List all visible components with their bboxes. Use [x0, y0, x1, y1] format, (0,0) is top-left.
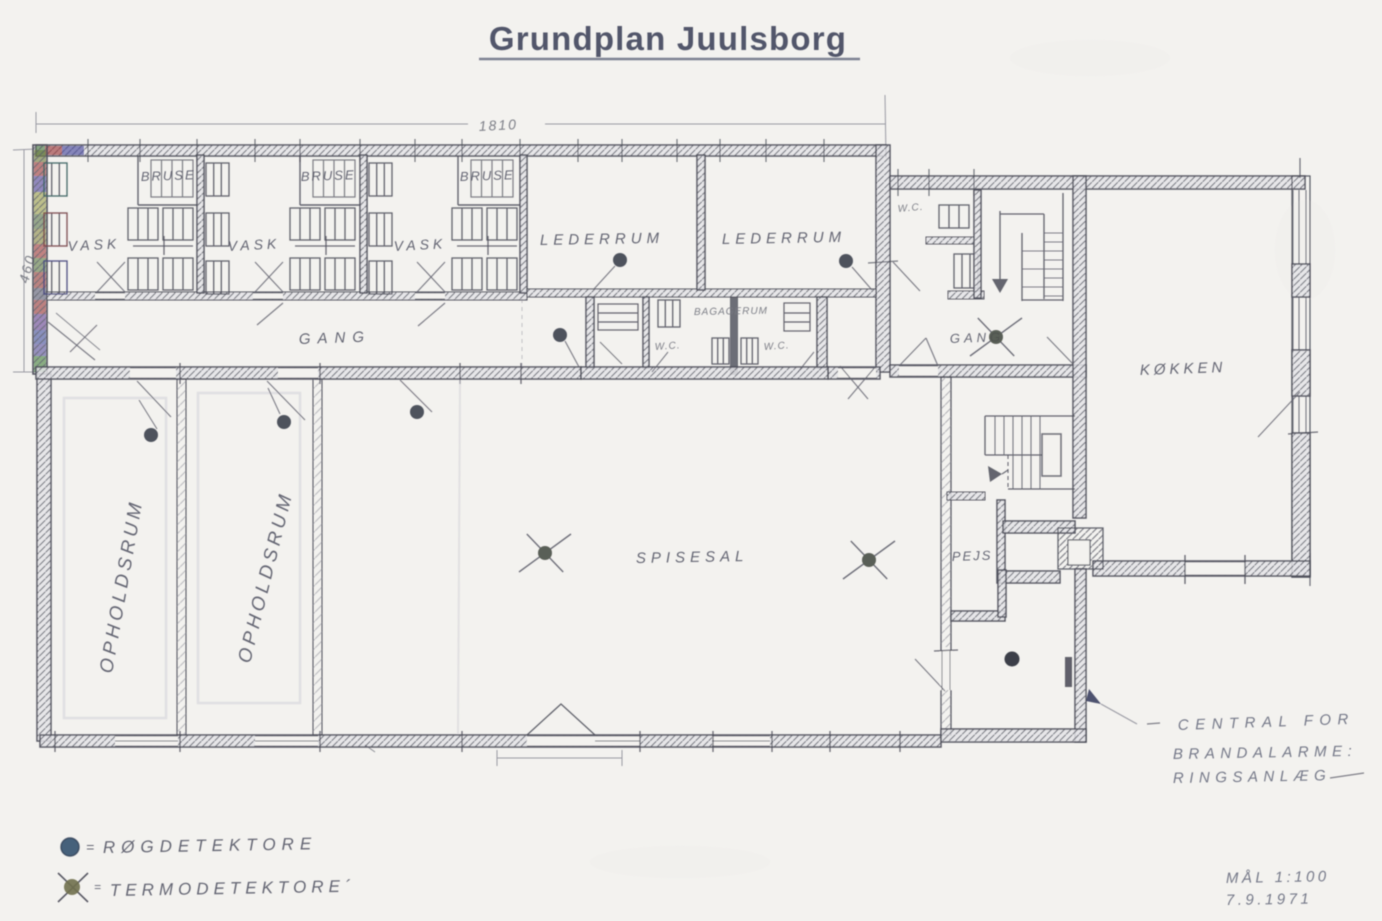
svg-text:BRUSE: BRUSE [141, 167, 196, 184]
svg-text:W.C.: W.C. [654, 340, 681, 353]
svg-text:VASK: VASK [67, 235, 120, 254]
svg-text:LEDERRUM: LEDERRUM [540, 230, 664, 249]
svg-text:=: = [94, 880, 101, 894]
svg-text:GANG: GANG [299, 328, 372, 348]
svg-text:BAGAGERUM: BAGAGERUM [694, 306, 768, 318]
svg-text:MÅL 1:100: MÅL 1:100 [1226, 868, 1330, 887]
svg-text:1810: 1810 [478, 116, 518, 134]
svg-text:VASK: VASK [393, 235, 446, 254]
svg-text:VASK: VASK [227, 235, 280, 254]
svg-text:KØKKEN: KØKKEN [1140, 359, 1227, 379]
svg-text:Grundplan Juulsborg: Grundplan Juulsborg [489, 20, 847, 57]
svg-text:RINGSANLÆG: RINGSANLÆG [1173, 767, 1332, 787]
svg-text:SPISESAL: SPISESAL [636, 548, 749, 567]
svg-text:W.C.: W.C. [763, 340, 790, 353]
svg-text:BRANDALARME:: BRANDALARME: [1173, 743, 1358, 763]
svg-text:=: = [86, 839, 94, 855]
svg-text:RØGDETEKTORE: RØGDETEKTORE [103, 834, 318, 857]
svg-text:W.C.: W.C. [897, 202, 924, 215]
svg-text:PEJS: PEJS [952, 548, 993, 564]
svg-text:LEDERRUM: LEDERRUM [722, 229, 846, 248]
svg-text:7.9.1971: 7.9.1971 [1226, 890, 1313, 909]
svg-text:BRUSE: BRUSE [460, 167, 515, 184]
svg-text:BRUSE: BRUSE [301, 167, 356, 184]
